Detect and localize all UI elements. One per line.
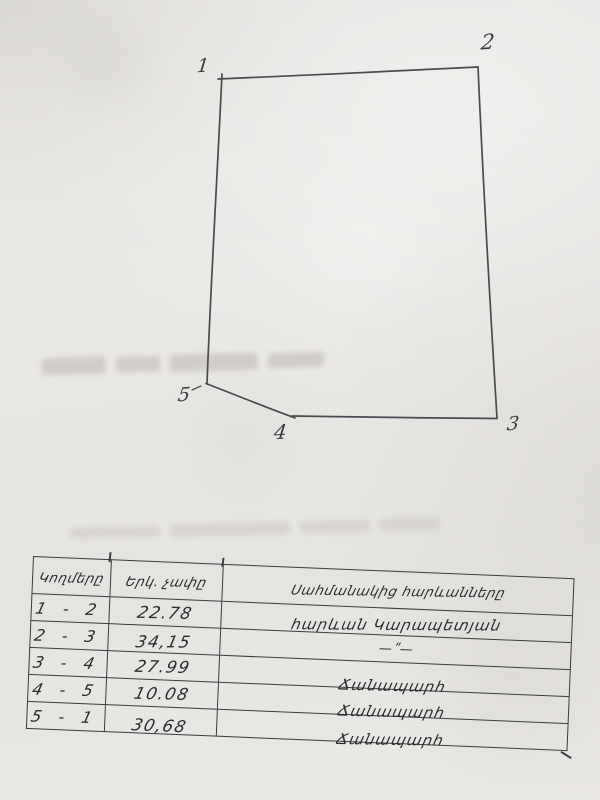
parcel-side-5-1 — [207, 74, 222, 384]
cell-side-pair: 4 - 5 — [28, 674, 107, 704]
measurement-table: Կողմերը Երկ. չափը Սահմանակից հարևանները … — [26, 556, 574, 751]
pen-overshoot — [561, 750, 572, 758]
cell-side-pair: 2 - 3 — [30, 620, 109, 650]
cell-length: 30,68 — [104, 705, 217, 737]
header-length: Երկ. չափը — [110, 560, 223, 602]
parcel-side-2-3 — [478, 67, 497, 418]
parcel-side-1-2 — [218, 67, 478, 79]
vertex-5-tick — [192, 386, 201, 390]
vertex-label-5: 5 — [177, 384, 192, 407]
cell-side-pair: 5 - 1 — [26, 701, 105, 731]
vertex-label-2: 2 — [480, 30, 496, 55]
cell-side-pair: 1 - 2 — [31, 593, 110, 623]
cell-side-pair: 3 - 4 — [29, 647, 108, 677]
vertex-label-4: 4 — [273, 420, 288, 445]
parcel-side-3-4 — [292, 416, 497, 419]
parcel-side-4-5 — [206, 384, 295, 419]
vertex-label-1: 1 — [196, 55, 211, 78]
vertex-label-3: 3 — [506, 413, 521, 436]
bleed-through-text-band — [70, 513, 470, 543]
scanned-survey-document: { "sketch": { "vertex_labels": ["1", "2"… — [0, 0, 600, 800]
parcel-sketch — [0, 0, 600, 470]
header-sides: Կողմերը — [32, 557, 111, 597]
